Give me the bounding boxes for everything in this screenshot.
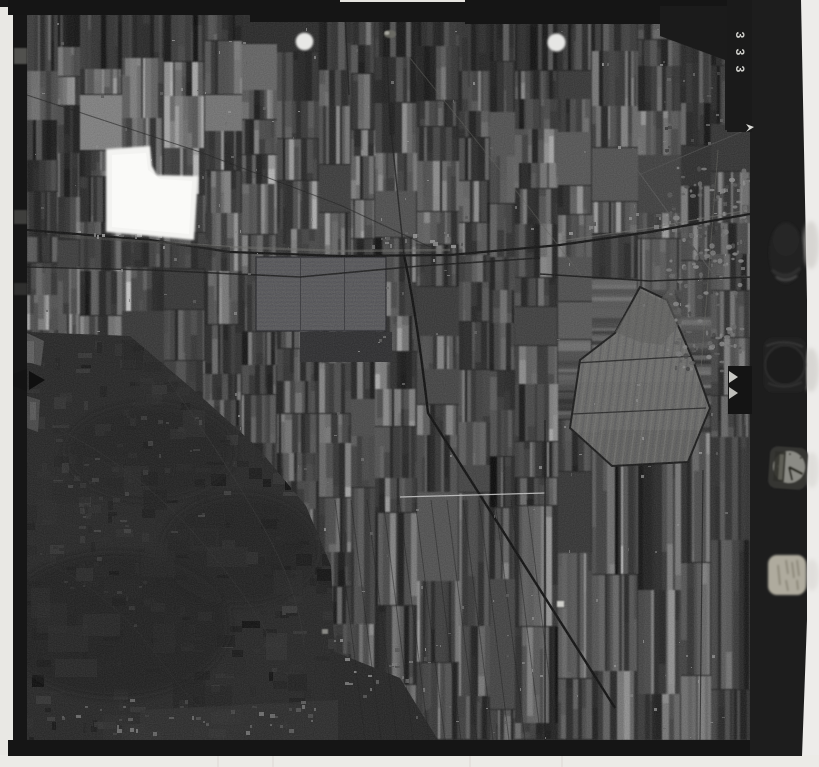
svg-text:3: 3 bbox=[733, 66, 747, 73]
svg-text:3: 3 bbox=[733, 32, 747, 39]
svg-text:3: 3 bbox=[733, 49, 747, 56]
